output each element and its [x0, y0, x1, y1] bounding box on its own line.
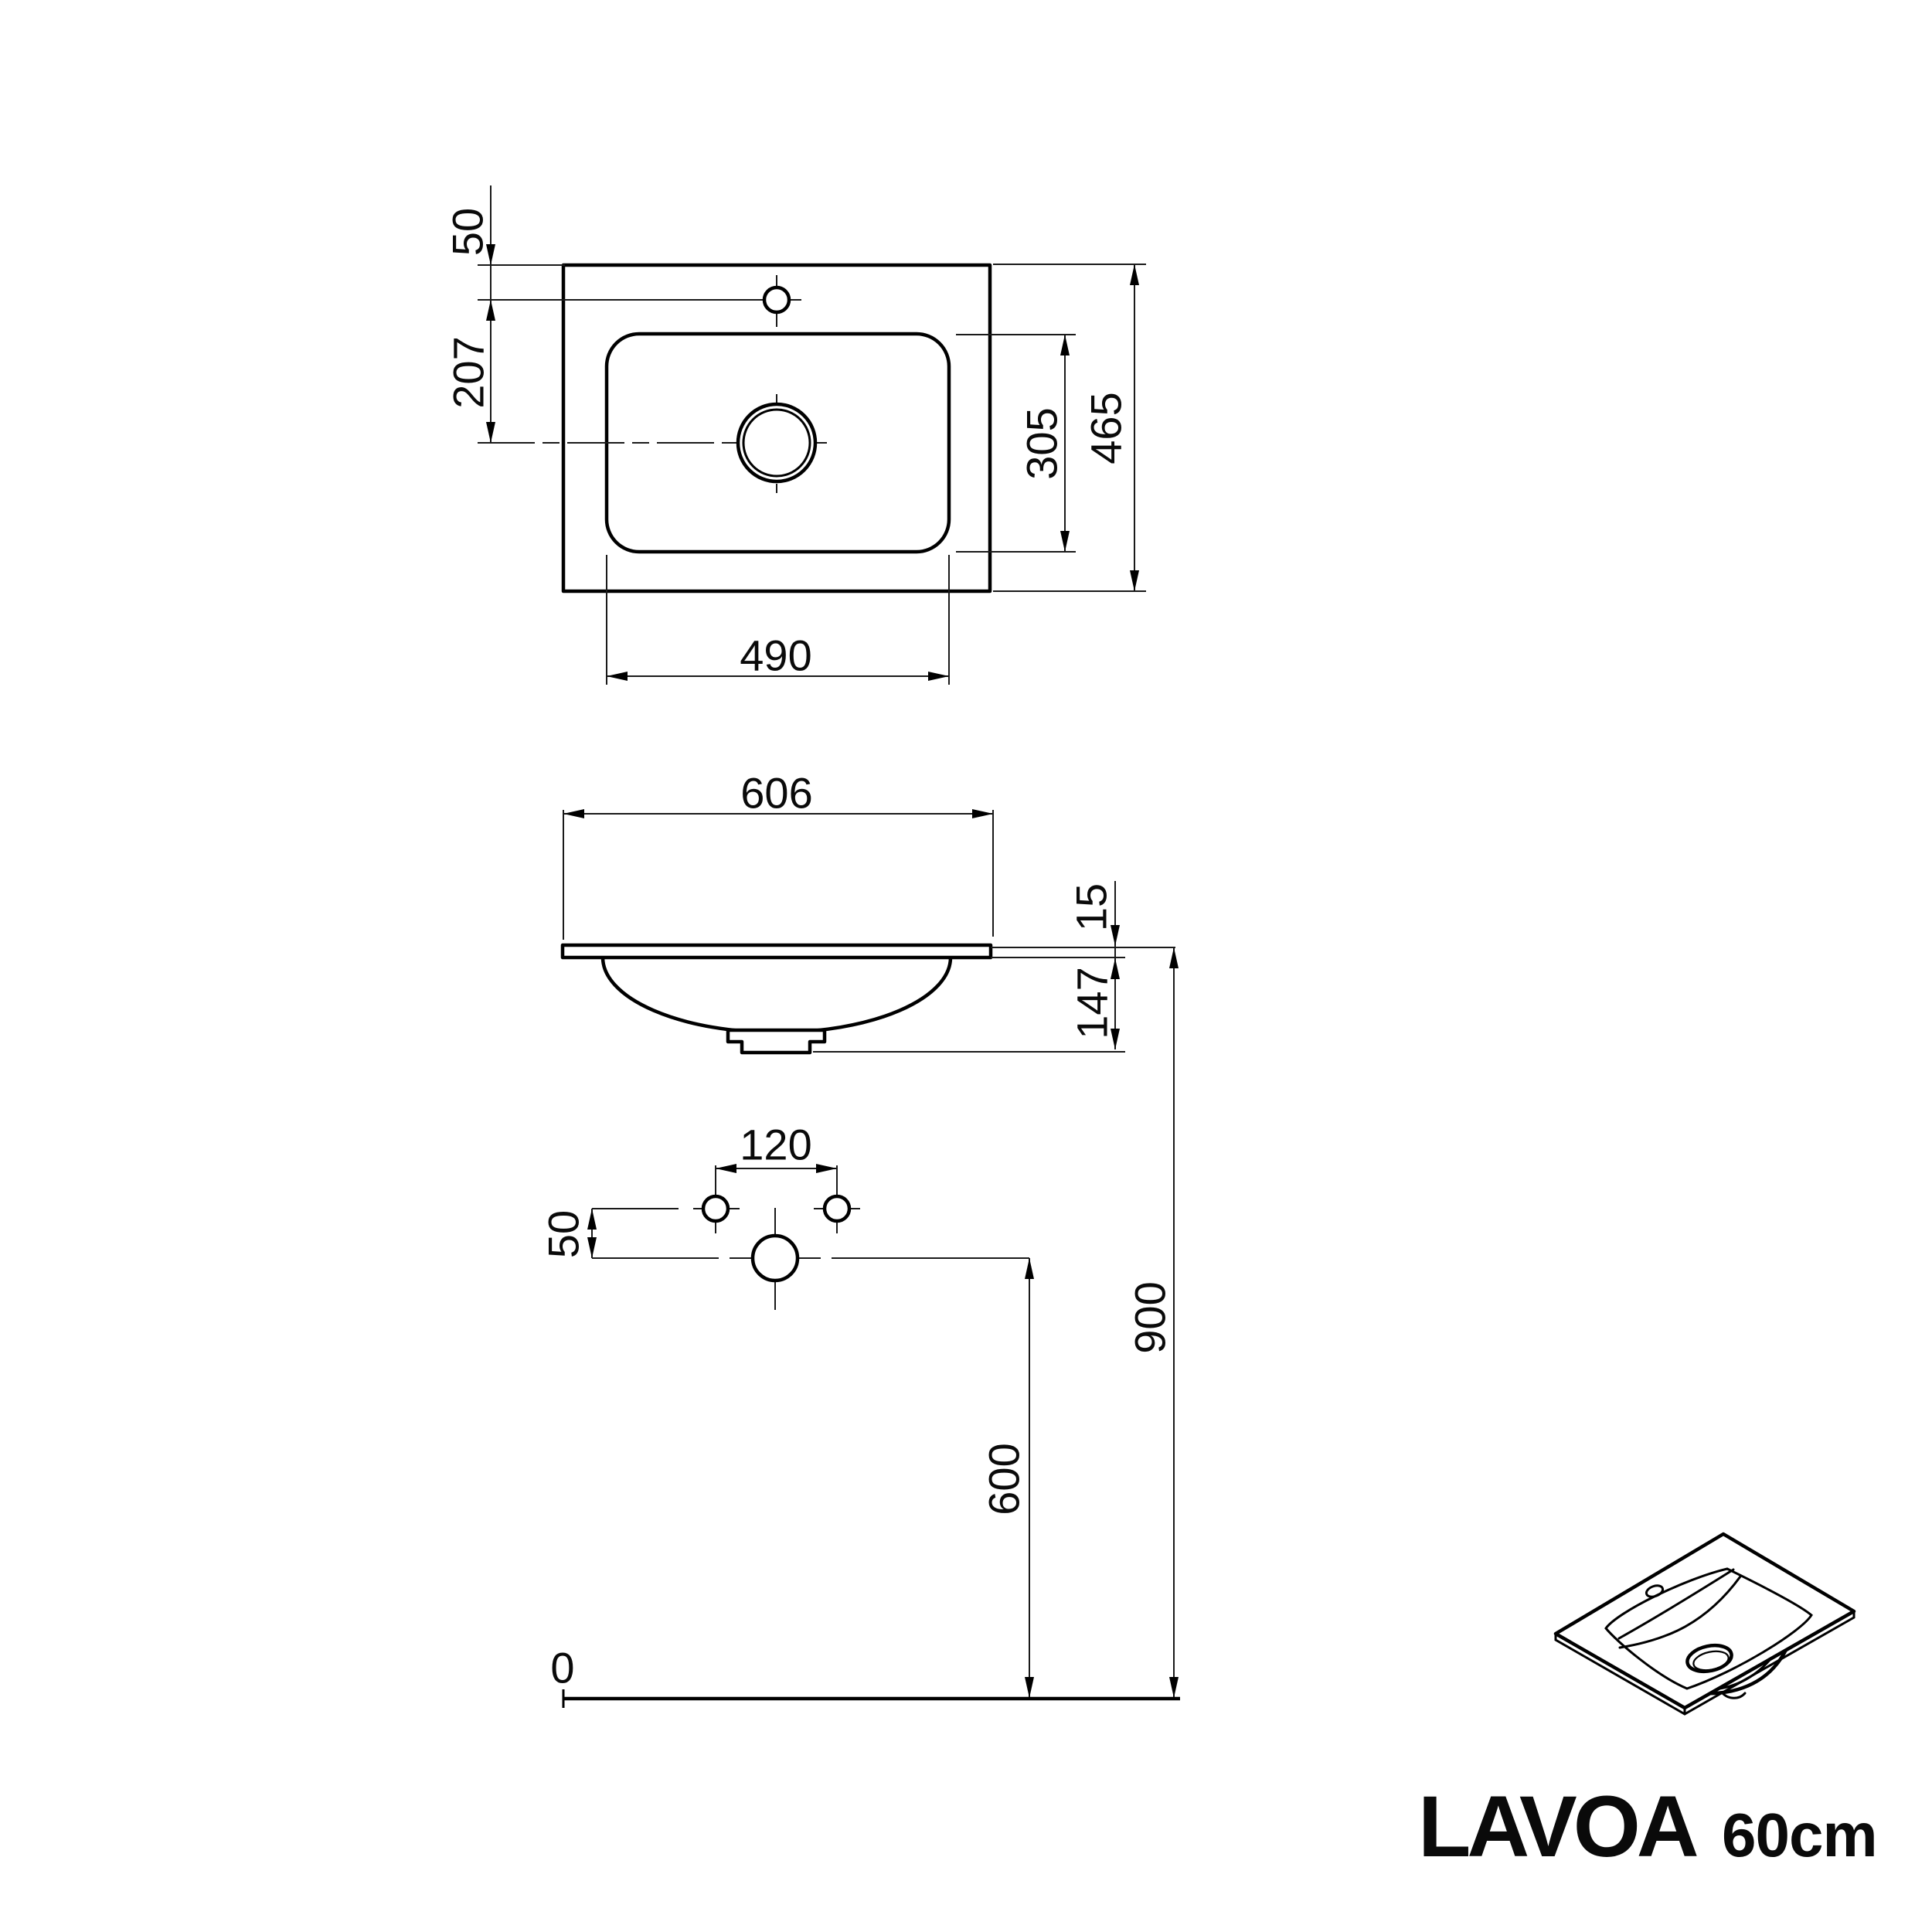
dim-label-rim-thickness: 15: [1067, 883, 1116, 931]
dimension-drawing-page: 50 207 490 305 465 606: [0, 0, 1932, 1932]
product-variant: 60cm: [1722, 1801, 1877, 1869]
faucet-hole: [764, 287, 789, 312]
drain-hole-outer: [738, 404, 815, 481]
dim-label-drain-below-holes: 50: [539, 1210, 588, 1258]
drain-outlet: [753, 1236, 798, 1281]
dim-label-drain-height: 600: [980, 1443, 1029, 1515]
dim-label-overall-width: 606: [740, 769, 812, 818]
front-rim-slab: [563, 945, 991, 957]
fixing-hole-left: [703, 1196, 728, 1221]
product-title: LAVOA 60cm: [1418, 1778, 1877, 1875]
installation-diagram: 120 50 600 900: [539, 947, 1179, 1698]
dim-label-drain-offset: 207: [444, 336, 493, 408]
top-view: 50 207 490 305 465: [444, 185, 1147, 685]
washbasin-dimension-drawing: 50 207 490 305 465 606: [0, 0, 1932, 1932]
fixing-hole-right: [825, 1196, 849, 1221]
front-view: 606 15 147: [563, 769, 1175, 1053]
dim-label-basin-width: 490: [740, 631, 811, 680]
product-name: LAVOA: [1418, 1778, 1697, 1875]
product-sketch-3d: [1556, 1534, 1854, 1714]
front-bowl-outline: [603, 957, 951, 1032]
dim-label-hole-spacing: 120: [740, 1121, 811, 1169]
front-drain-fitting: [728, 1030, 825, 1053]
dim-label-bowl-depth: 147: [1068, 967, 1117, 1039]
dim-label-floor-level: 0: [550, 1644, 574, 1692]
dim-label-faucet-offset: 50: [444, 208, 492, 256]
floor-reference: 0: [550, 1644, 1180, 1709]
dim-label-overall-depth: 465: [1082, 392, 1131, 464]
dim-label-basin-depth: 305: [1018, 407, 1066, 479]
dim-label-rim-height: 900: [1126, 1281, 1175, 1353]
